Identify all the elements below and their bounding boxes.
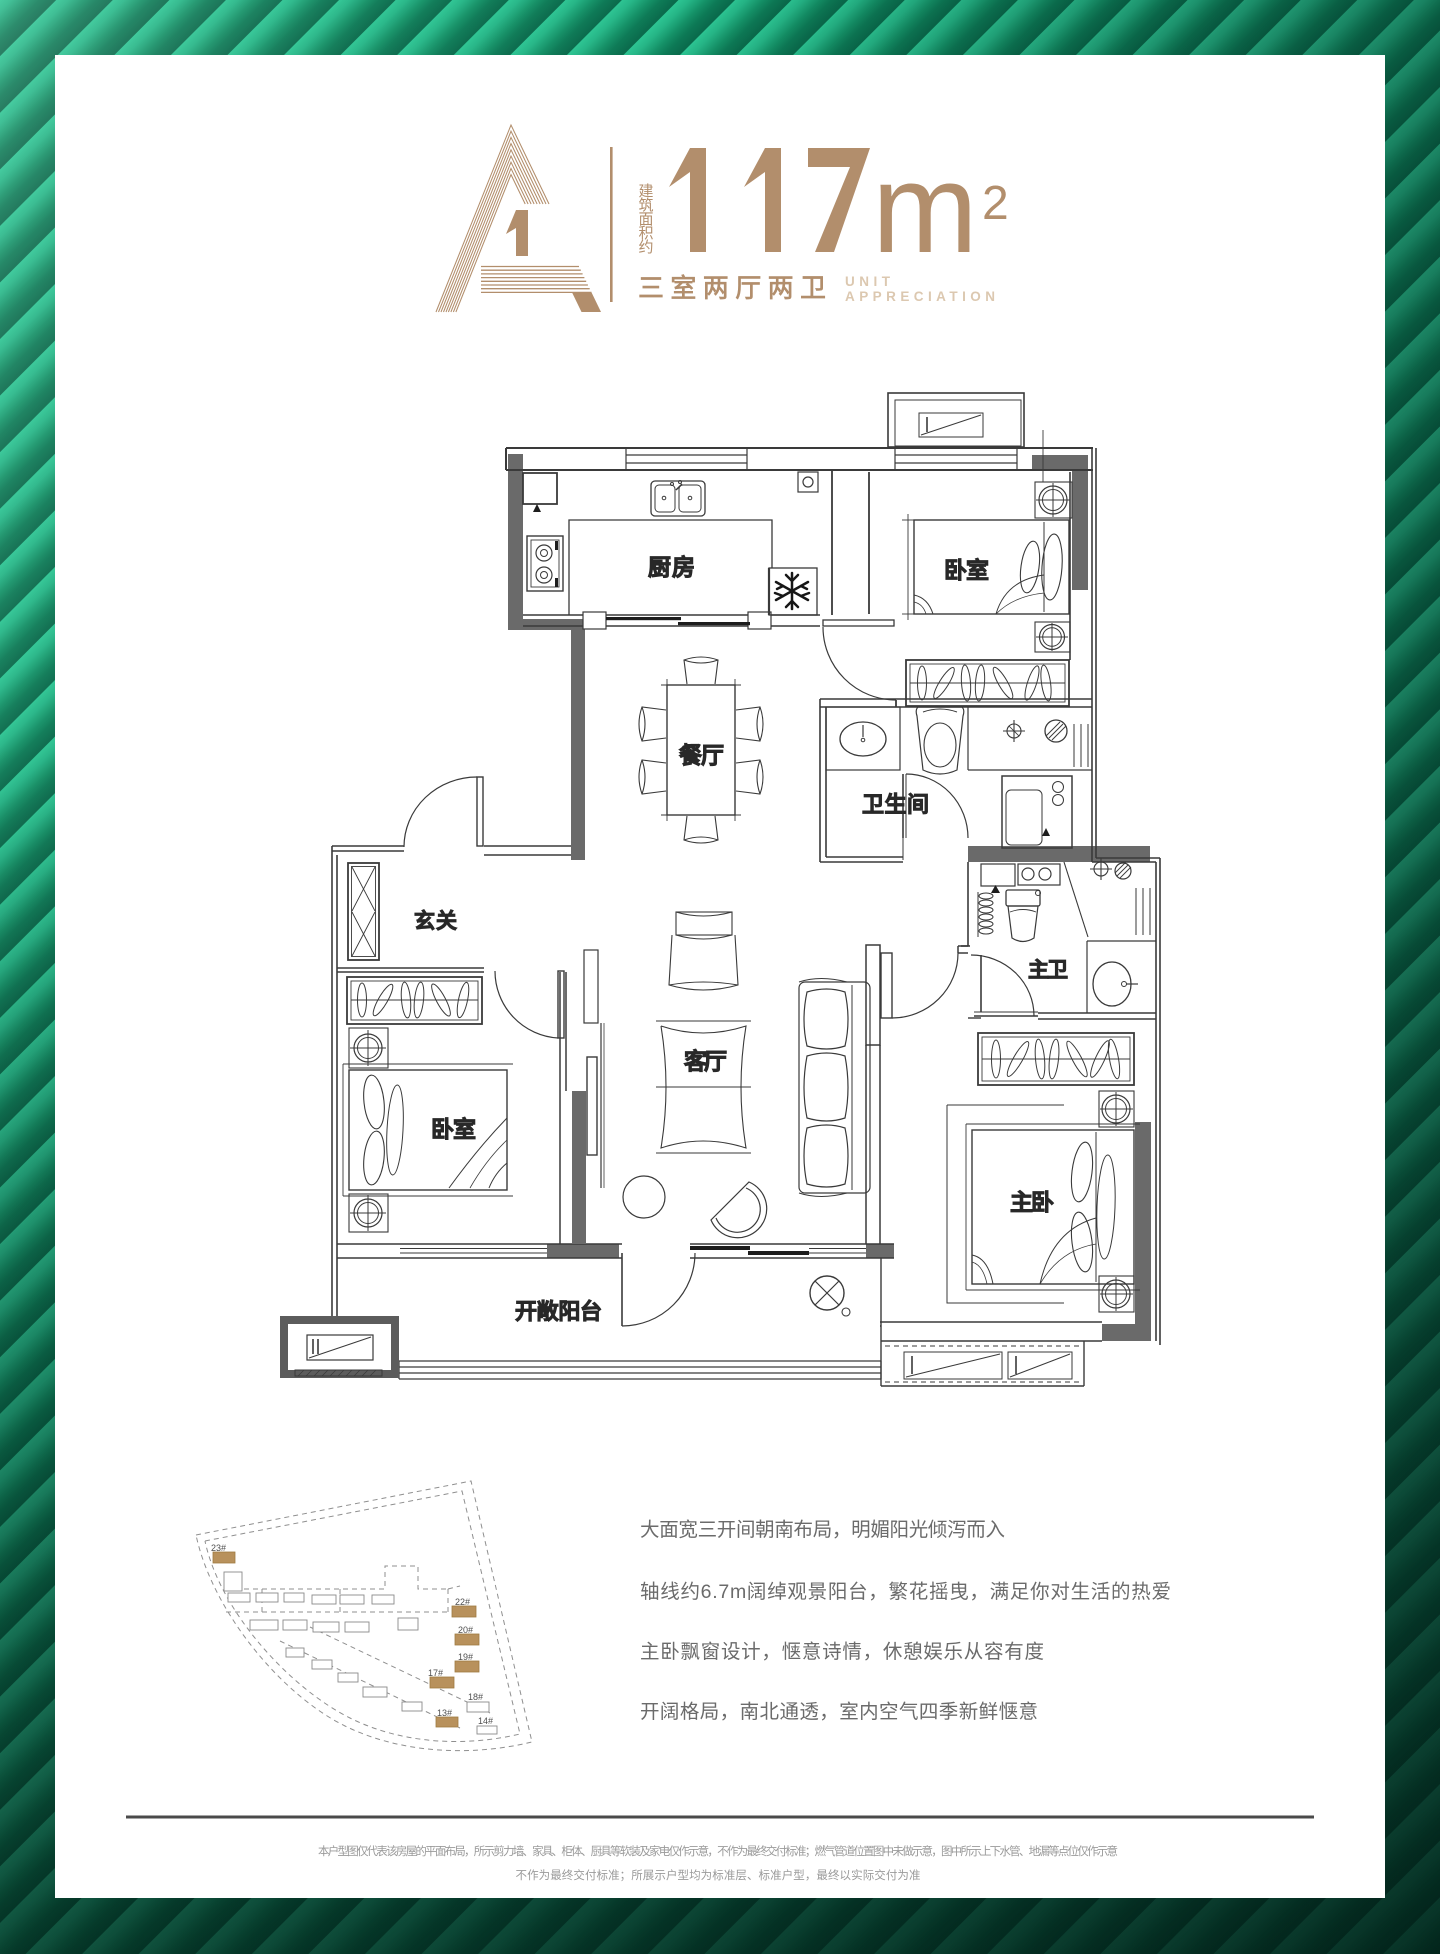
svg-text:UNIT: UNIT (845, 274, 891, 289)
svg-text:约: 约 (638, 239, 653, 256)
svg-text:14#: 14# (478, 1716, 493, 1726)
svg-text:18#: 18# (468, 1692, 483, 1702)
svg-text:本户型图仅代表该房屋的平面布局，所示剪力墙、家具、柜体、厨具: 本户型图仅代表该房屋的平面布局，所示剪力墙、家具、柜体、厨具等软装及家电仅作示意… (318, 1844, 1118, 1858)
svg-text:主卧: 主卧 (1010, 1189, 1054, 1215)
svg-text:卧室: 卧室 (944, 557, 989, 583)
svg-text:轴线约6.7m阔绰观景阳台，繁花摇曳，满足你对生活的热爱: 轴线约6.7m阔绰观景阳台，繁花摇曳，满足你对生活的热爱 (640, 1581, 1171, 1603)
svg-text:客厅: 客厅 (684, 1048, 727, 1074)
svg-text:卫生间: 卫生间 (862, 792, 929, 817)
svg-text:2: 2 (982, 177, 1009, 230)
svg-text:三室两厅两卫: 三室两厅两卫 (638, 273, 826, 303)
svg-text:APPRECIATION: APPRECIATION (845, 289, 995, 304)
svg-text:13#: 13# (437, 1708, 452, 1718)
svg-text:开阔格局，南北通透，室内空气四季新鲜惬意: 开阔格局，南北通透，室内空气四季新鲜惬意 (640, 1701, 1038, 1723)
svg-text:17#: 17# (428, 1668, 443, 1678)
svg-text:20#: 20# (458, 1625, 473, 1635)
svg-text:19#: 19# (458, 1652, 473, 1662)
svg-text:开敞阳台: 开敞阳台 (515, 1299, 602, 1324)
svg-text:卧室: 卧室 (431, 1116, 476, 1142)
svg-text:玄关: 玄关 (414, 909, 457, 933)
svg-text:m: m (872, 137, 978, 279)
svg-text:22#: 22# (455, 1597, 470, 1607)
svg-text:大面宽三开间朝南布局，明媚阳光倾泻而入: 大面宽三开间朝南布局，明媚阳光倾泻而入 (640, 1519, 1005, 1541)
svg-text:不作为最终交付标准；所展示户型均为标准层、标准户型，最终以实: 不作为最终交付标准；所展示户型均为标准层、标准户型，最终以实际交付为准 (516, 1868, 921, 1882)
svg-text:厨房: 厨房 (648, 554, 695, 580)
svg-text:23#: 23# (211, 1543, 226, 1553)
svg-text:餐厅: 餐厅 (679, 742, 724, 768)
svg-text:主卧飘窗设计，惬意诗情，休憩娱乐从容有度: 主卧飘窗设计，惬意诗情，休憩娱乐从容有度 (640, 1641, 1044, 1663)
svg-text:主卫: 主卫 (1028, 959, 1068, 982)
